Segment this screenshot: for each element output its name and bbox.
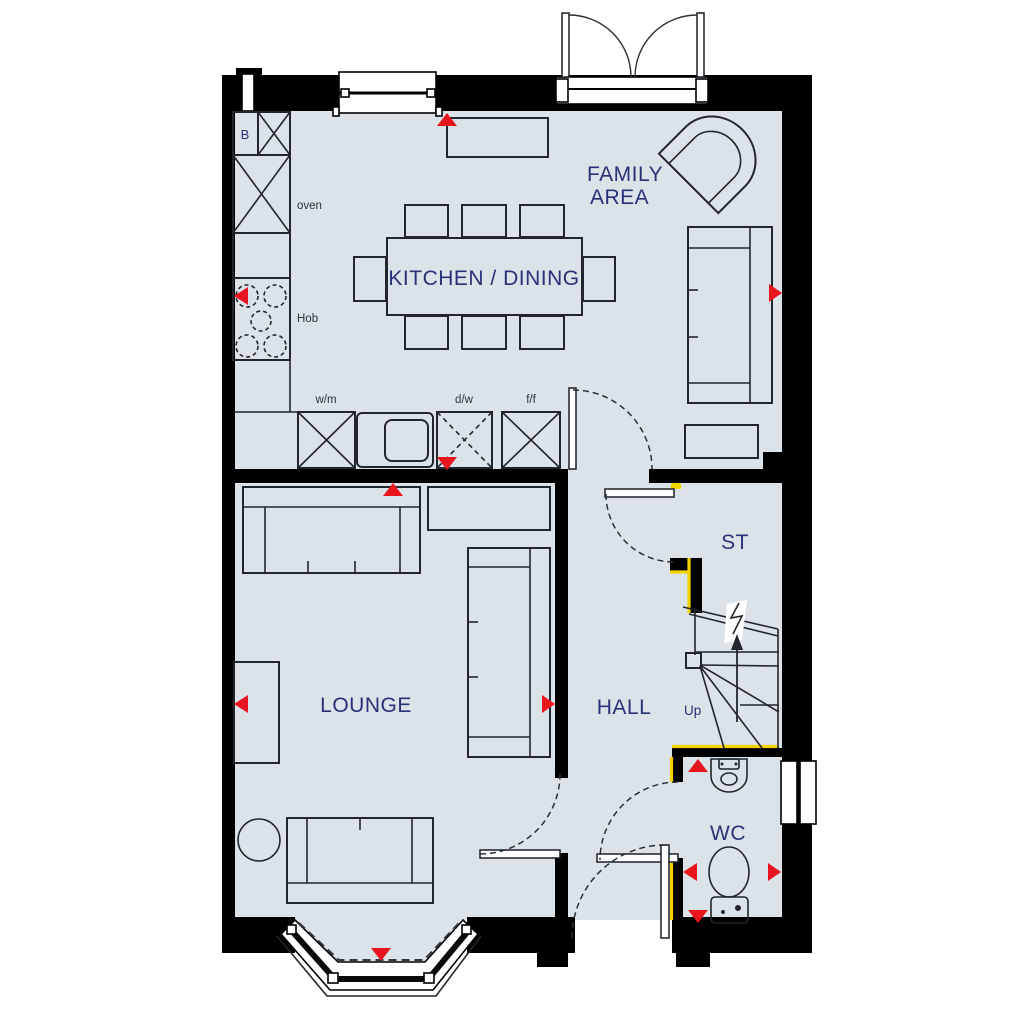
kitchen-window	[333, 72, 442, 116]
porch-pier-right	[676, 950, 710, 967]
french-doors	[556, 13, 708, 104]
label-wc: WC	[710, 822, 746, 845]
window-sill-left	[333, 107, 339, 116]
floor-plan-drawing: KITCHEN / DINING FAMILY AREA LOUNGE HALL…	[0, 0, 1024, 1024]
wall-lounge-hall-upper	[555, 483, 568, 778]
bay-mullion	[287, 925, 296, 934]
winder-tread	[700, 665, 779, 666]
front-door-leaf	[661, 845, 669, 938]
porch-pier-left	[537, 950, 568, 967]
wc-window-pane	[800, 761, 816, 824]
label-lounge: LOUNGE	[320, 694, 412, 717]
lounge-door-leaf	[480, 850, 560, 858]
wall-pier	[763, 452, 782, 469]
wall-stairs-wc	[672, 748, 782, 757]
label-boiler: B	[241, 127, 250, 142]
label-hob: Hob	[297, 313, 318, 325]
bay-mullion	[328, 973, 338, 983]
window-mullion	[341, 89, 349, 97]
label-stairs-up: Up	[684, 703, 701, 718]
opening-wc-door	[670, 782, 683, 858]
flue-body	[242, 74, 254, 111]
wall-top	[222, 75, 812, 111]
french-door-leaf-right	[697, 13, 704, 77]
yellow-jamb	[671, 483, 681, 489]
wall-bottom-mid	[467, 917, 575, 953]
french-door-jamb-left	[556, 79, 568, 102]
label-dishwasher: d/w	[455, 394, 474, 406]
bay-mullion	[424, 973, 434, 983]
label-store: ST	[721, 531, 749, 554]
label-hall: HALL	[597, 696, 652, 719]
label-family-area-line2: AREA	[590, 186, 649, 209]
stair-stub-wall-v	[690, 558, 702, 613]
window-mullion	[427, 89, 435, 97]
wall-family-store	[649, 469, 782, 483]
label-kitchen-dining: KITCHEN / DINING	[388, 267, 579, 290]
kitchen-door-leaf	[569, 388, 576, 469]
french-door-jamb-right	[696, 79, 708, 102]
opening-lounge-door	[555, 778, 568, 853]
label-fridge-freezer: f/f	[526, 394, 536, 406]
wc-window-pane	[781, 761, 797, 824]
label-oven: oven	[297, 200, 322, 212]
opening-front-door	[575, 920, 672, 967]
wall-lounge-hall-lower	[555, 853, 568, 920]
window-sill-right	[436, 107, 442, 116]
french-door-leaf-left	[562, 13, 569, 77]
french-door-swing-right	[635, 15, 697, 77]
opening-kitchen-door	[568, 469, 649, 483]
label-family-area-line1: FAMILY	[587, 163, 663, 186]
floor-plan-page: KITCHEN / DINING FAMILY AREA LOUNGE HALL…	[0, 0, 1024, 1024]
store-door-leaf	[605, 489, 674, 497]
bay-mullion	[462, 925, 471, 934]
wall-kitchen-lounge	[234, 469, 568, 483]
french-door-threshold	[556, 77, 708, 104]
french-door-swing-left	[569, 15, 631, 77]
label-washing-machine: w/m	[314, 394, 336, 406]
